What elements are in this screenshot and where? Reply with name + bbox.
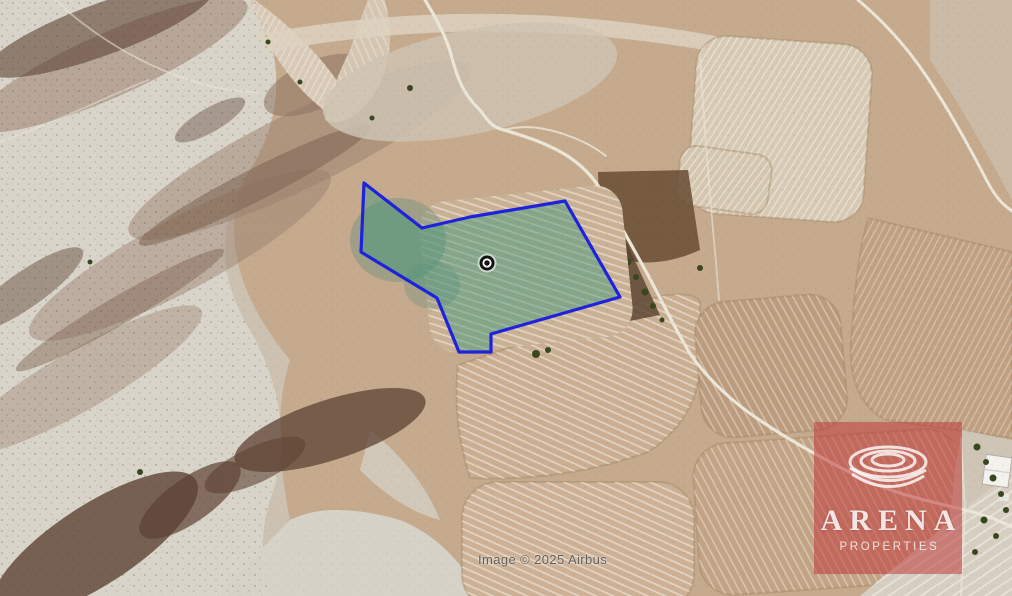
arena-logo-title: ARENA: [814, 506, 963, 536]
map-attribution: Image © 2025 Airbus: [478, 552, 607, 567]
arena-watermark: ARENA PROPERTIES: [814, 422, 962, 574]
amphitheater-icon: [846, 440, 930, 498]
arena-logo-subtitle: PROPERTIES: [837, 541, 940, 553]
satellite-map[interactable]: Image © 2025 Airbus ARENA PROPERTIES: [0, 0, 1012, 596]
